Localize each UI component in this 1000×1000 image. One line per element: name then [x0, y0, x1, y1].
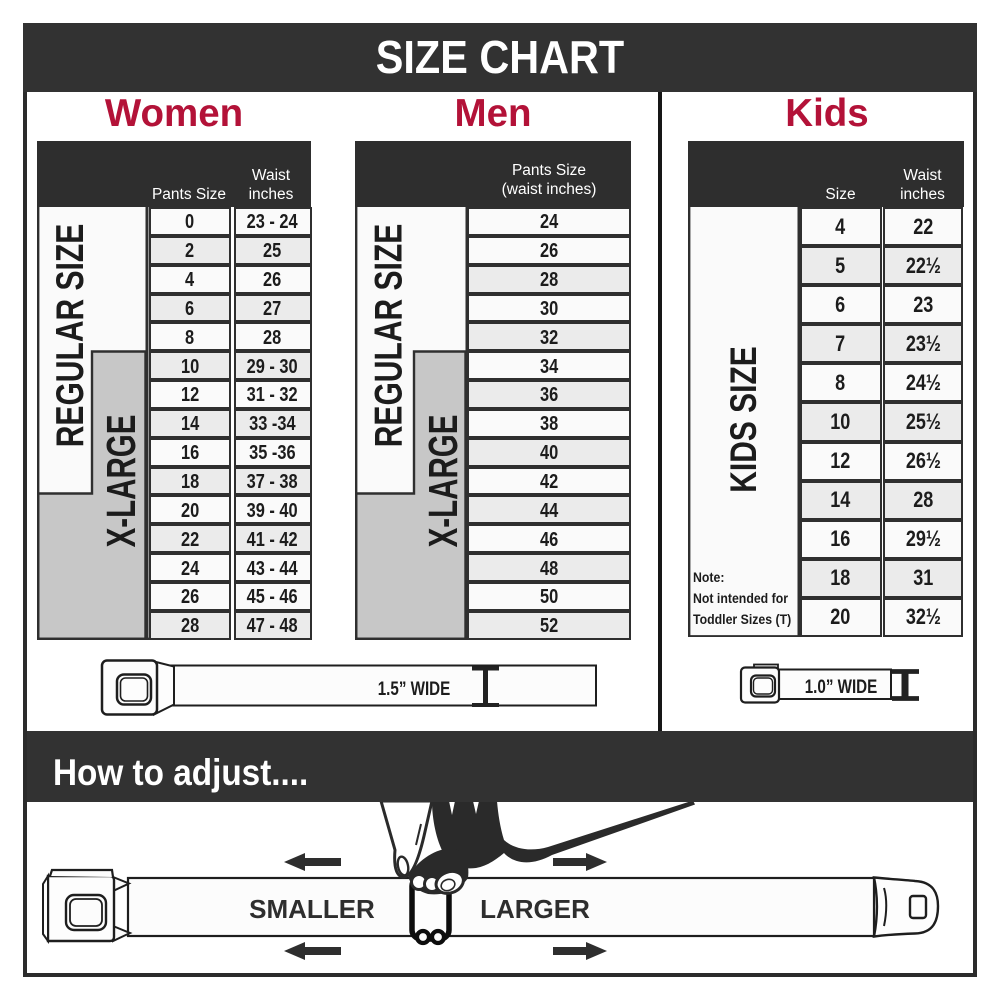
svg-text:REGULAR SIZE: REGULAR SIZE [50, 223, 92, 447]
svg-text:1.5” WIDE: 1.5” WIDE [378, 677, 451, 699]
svg-text:LARGER: LARGER [480, 894, 590, 924]
svg-text:1.0” WIDE: 1.0” WIDE [805, 675, 878, 697]
svg-text:X-LARGE: X-LARGE [420, 414, 466, 547]
svg-text:Note:: Note: [693, 569, 724, 585]
svg-text:Toddler Sizes (T): Toddler Sizes (T) [693, 611, 791, 627]
svg-text:SMALLER: SMALLER [249, 894, 375, 924]
svg-text:X-LARGE: X-LARGE [98, 414, 144, 547]
svg-text:KIDS SIZE: KIDS SIZE [724, 346, 765, 492]
svg-text:Not intended for: Not intended for [693, 590, 788, 606]
svg-text:REGULAR SIZE: REGULAR SIZE [368, 223, 410, 447]
